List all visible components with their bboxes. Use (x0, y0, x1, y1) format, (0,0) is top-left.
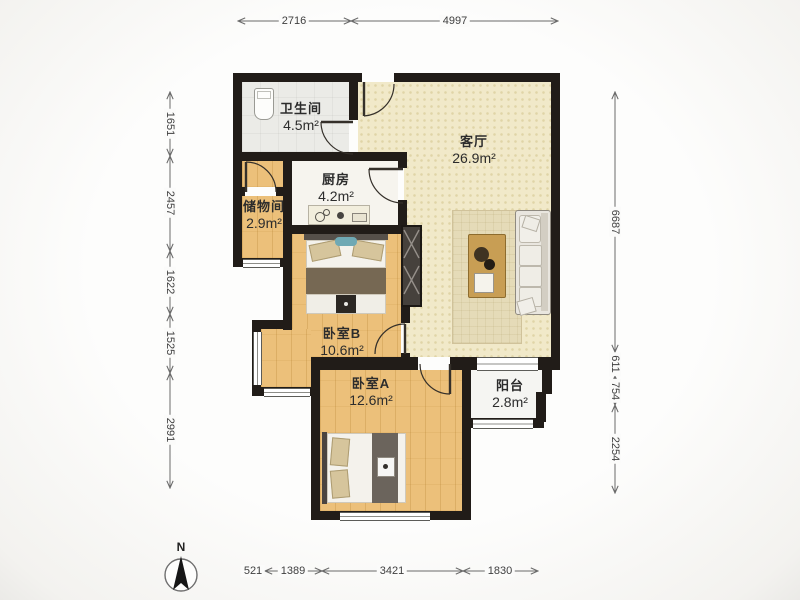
device-dot (383, 464, 388, 469)
room-name: 卫生间 (280, 101, 322, 117)
room-name: 卧室A (349, 376, 393, 392)
balcony-slider-window (477, 357, 538, 371)
tv-stand-icon (336, 295, 356, 313)
device-icon (377, 457, 395, 477)
room-label-living: 客厅 26.9m² (452, 134, 496, 166)
dim-left-3: 1622 (164, 267, 176, 297)
wall-segment (233, 152, 407, 161)
dim-left-5: 2991 (164, 415, 176, 445)
wall-segment (233, 187, 245, 196)
dim-left-1: 1651 (164, 109, 176, 139)
window-symbol (340, 512, 430, 521)
dim-bottom-3: 3421 (377, 565, 407, 577)
toilet-icon (254, 88, 274, 120)
room-label-bathroom: 卫生间 4.5m² (280, 101, 322, 133)
dim-top-2: 4997 (440, 15, 470, 27)
dim-bottom-1: 521 (241, 565, 265, 577)
burner-icon (323, 209, 330, 216)
room-name: 阳台 (492, 378, 528, 394)
floorplan-canvas: 卫生间 4.5m² 厨房 4.2m² 储物间 2.9m² 客厅 26.9m² 卧… (0, 0, 800, 600)
dim-bottom-4: 1830 (485, 565, 515, 577)
bed-bedroom-a (322, 432, 406, 504)
wall-segment (551, 73, 560, 363)
window-symbol (253, 332, 262, 385)
room-label-kitchen: 厨房 4.2m² (318, 172, 354, 204)
window-symbol (473, 419, 533, 429)
burner-icon (337, 212, 344, 219)
toilet-tank (257, 91, 271, 99)
room-label-balcony: 阳台 2.8m² (492, 378, 528, 410)
control-panel-icon (352, 213, 367, 222)
room-area: 2.9m² (243, 214, 285, 231)
room-name: 卧室B (320, 326, 364, 342)
wall-segment (233, 73, 362, 82)
wall-segment (394, 73, 560, 82)
sofa-pillow (516, 297, 536, 316)
room-area: 4.2m² (318, 187, 354, 204)
sofa-back (541, 213, 548, 311)
room-label-bedroom-b: 卧室B 10.6m² (320, 326, 364, 358)
bedroom-b-floor (261, 329, 311, 387)
room-name: 客厅 (452, 134, 496, 150)
wall-segment (311, 357, 320, 520)
room-name: 储物间 (243, 199, 285, 215)
compass-north-label: N (177, 540, 186, 554)
dim-right-2: 611 (609, 352, 621, 376)
bed-pillow (330, 469, 350, 498)
wall-segment (462, 357, 471, 520)
wall-segment (311, 357, 418, 370)
wall-segment (233, 73, 242, 267)
duct-shaft (401, 225, 422, 307)
wall-segment (542, 363, 552, 394)
room-area: 10.6m² (320, 341, 364, 358)
compass-icon (165, 556, 197, 591)
sofa-cushion (519, 266, 542, 287)
room-area: 2.8m² (492, 393, 528, 410)
room-label-storage: 储物间 2.9m² (243, 199, 285, 231)
wall-segment (283, 152, 292, 330)
wall-segment (283, 225, 410, 234)
dim-left-4: 1525 (164, 328, 176, 358)
wall-segment (349, 73, 358, 120)
device-dot (344, 302, 348, 306)
accent-pillow (335, 237, 357, 246)
window-symbol (243, 259, 280, 268)
dim-top-1: 2716 (279, 15, 309, 27)
bed-blanket (306, 268, 386, 294)
sofa (515, 210, 551, 315)
room-name: 厨房 (318, 172, 354, 188)
coffee-table (468, 234, 506, 298)
room-area: 12.6m² (349, 391, 393, 408)
bed-bedroom-b (304, 232, 388, 314)
bed-pillow (330, 437, 350, 466)
wall-segment (398, 152, 407, 168)
sofa-cushion (519, 245, 542, 266)
dim-right-1: 6687 (609, 207, 621, 237)
dim-right-4: 2254 (609, 434, 621, 464)
room-area: 4.5m² (280, 116, 322, 133)
tray-icon (474, 273, 494, 293)
window-symbol (264, 388, 310, 397)
dim-right-3: 754 (609, 379, 621, 403)
dim-bottom-2: 1389 (278, 565, 308, 577)
room-label-bedroom-a: 卧室A 12.6m² (349, 376, 393, 408)
dim-left-2: 2457 (164, 188, 176, 218)
plant-icon (484, 259, 495, 270)
hall-floor (242, 161, 283, 187)
room-area: 26.9m² (452, 149, 496, 166)
kitchen-counter (308, 205, 370, 225)
